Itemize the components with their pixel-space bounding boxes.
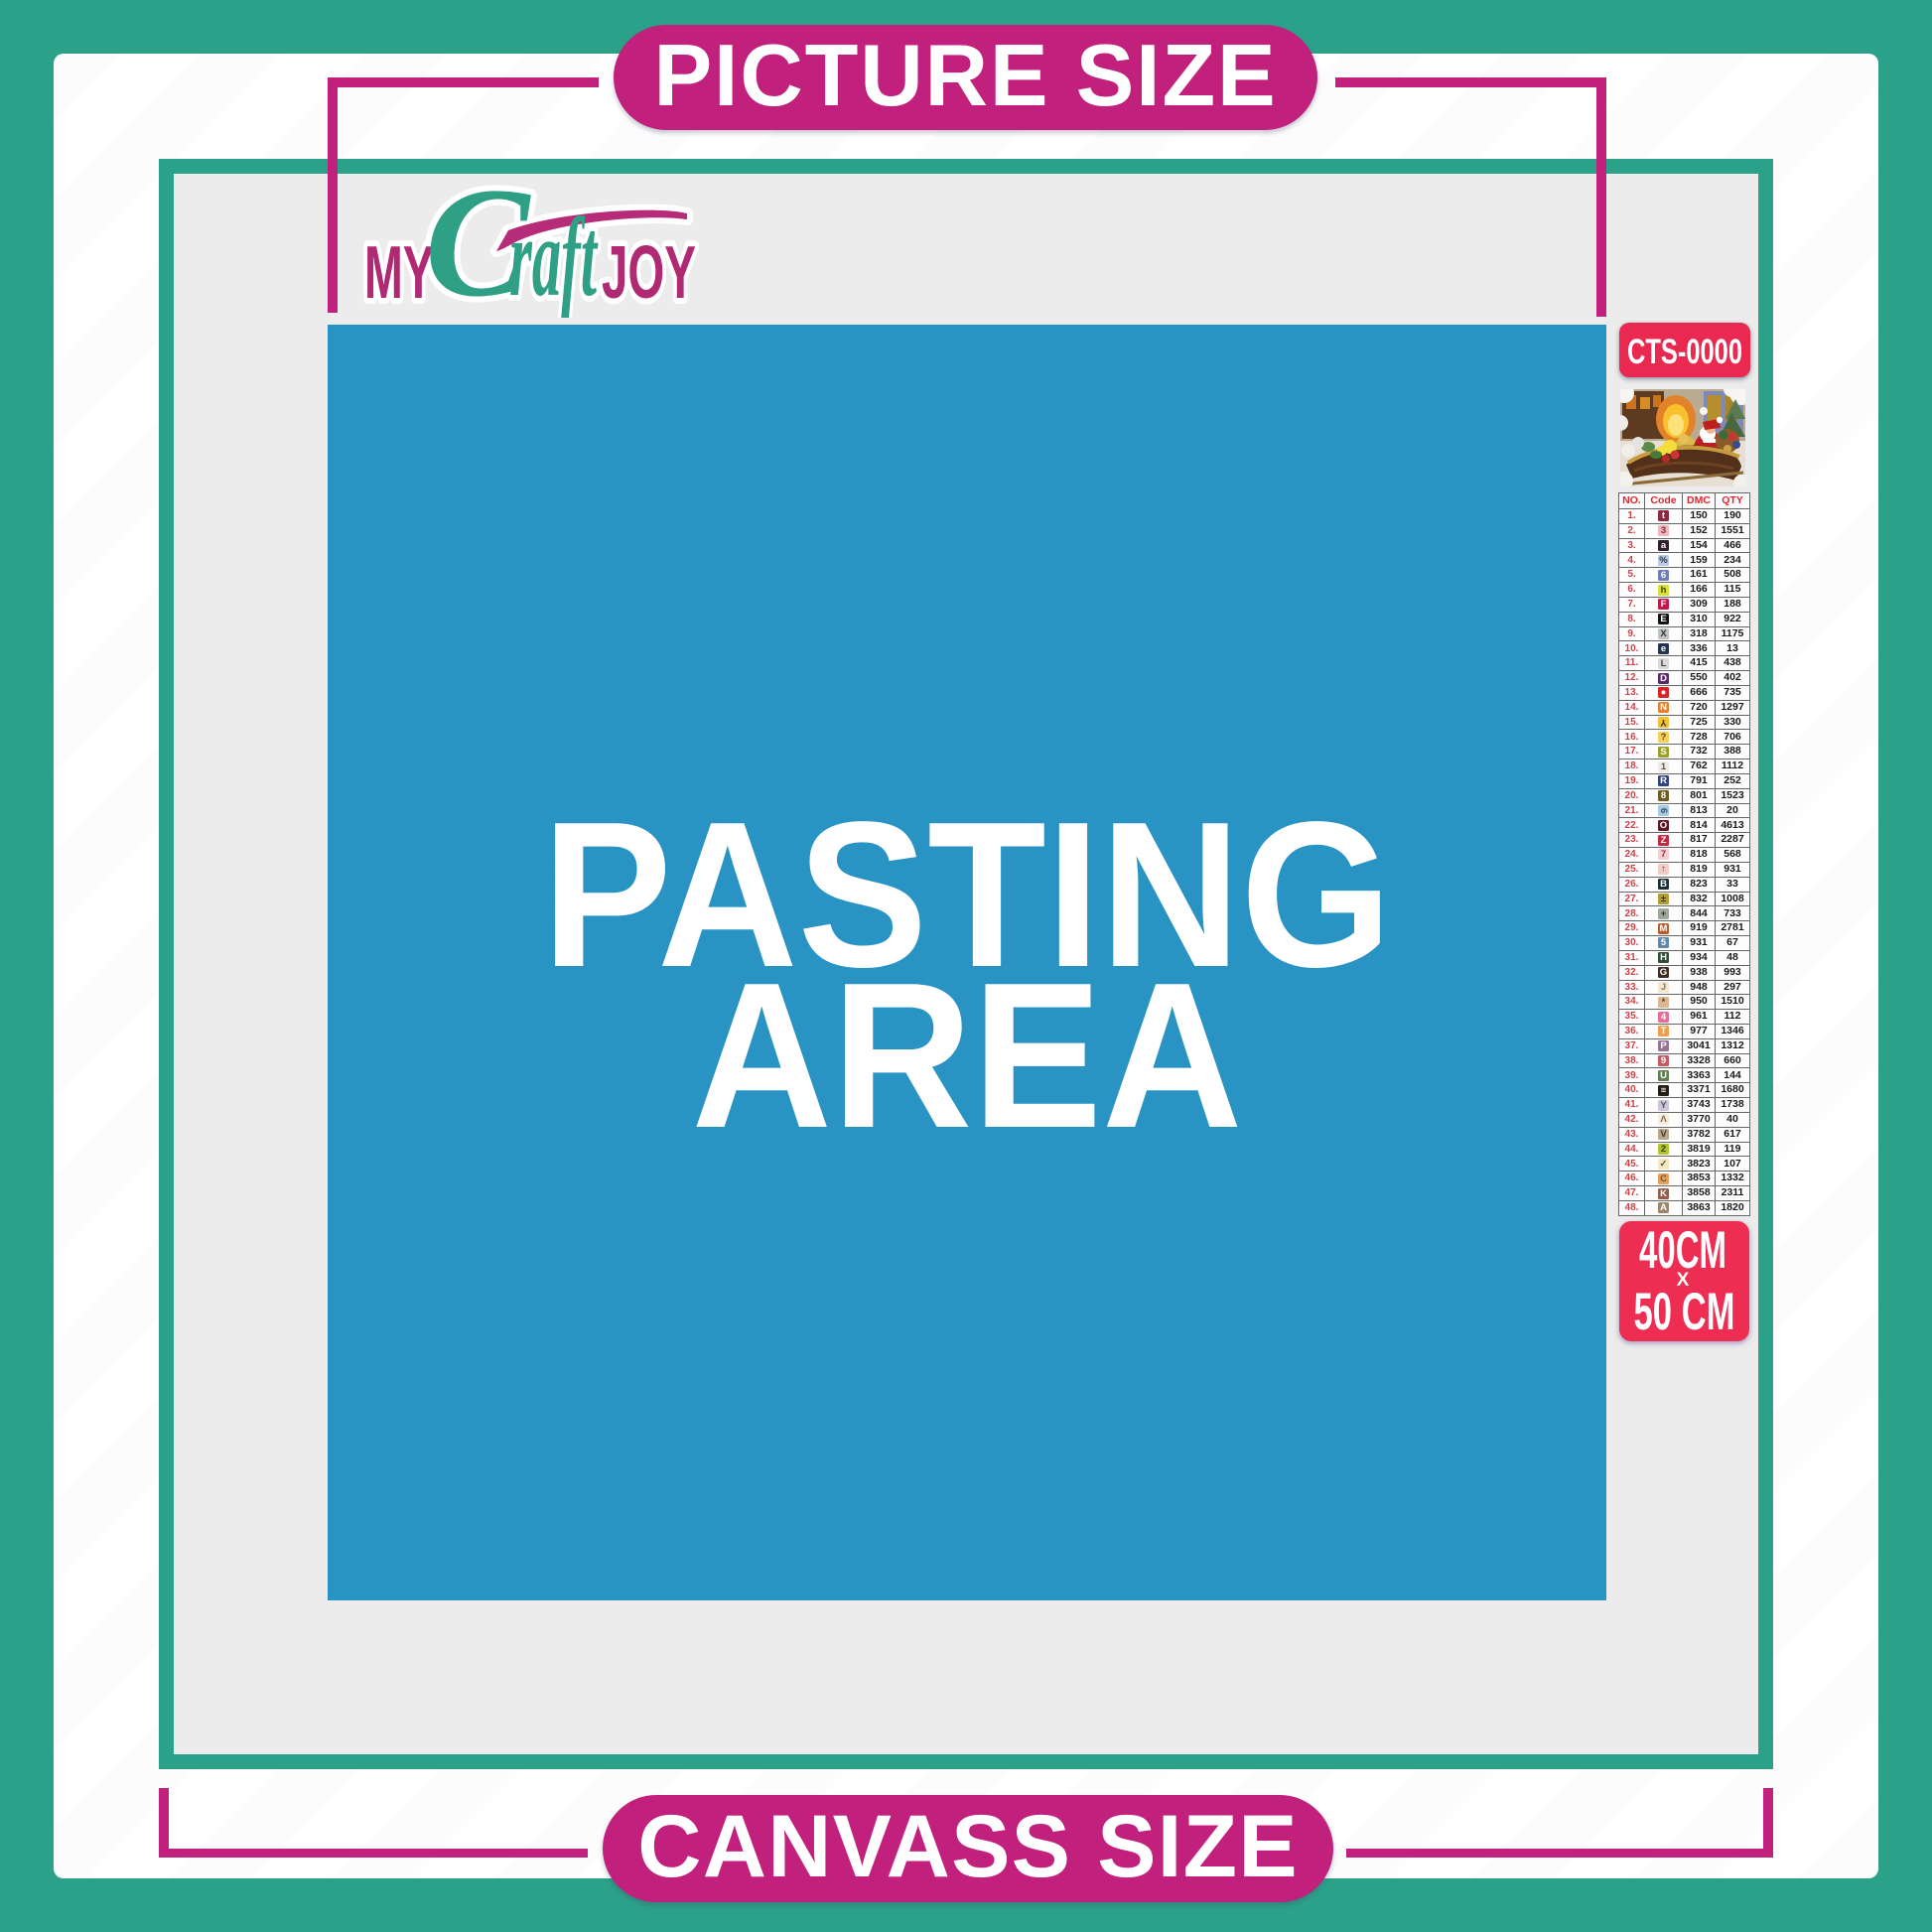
svg-text:JOY: JOY [602,230,696,314]
svg-text:MY: MY [364,230,434,314]
svg-text:raft: raft [509,196,599,318]
